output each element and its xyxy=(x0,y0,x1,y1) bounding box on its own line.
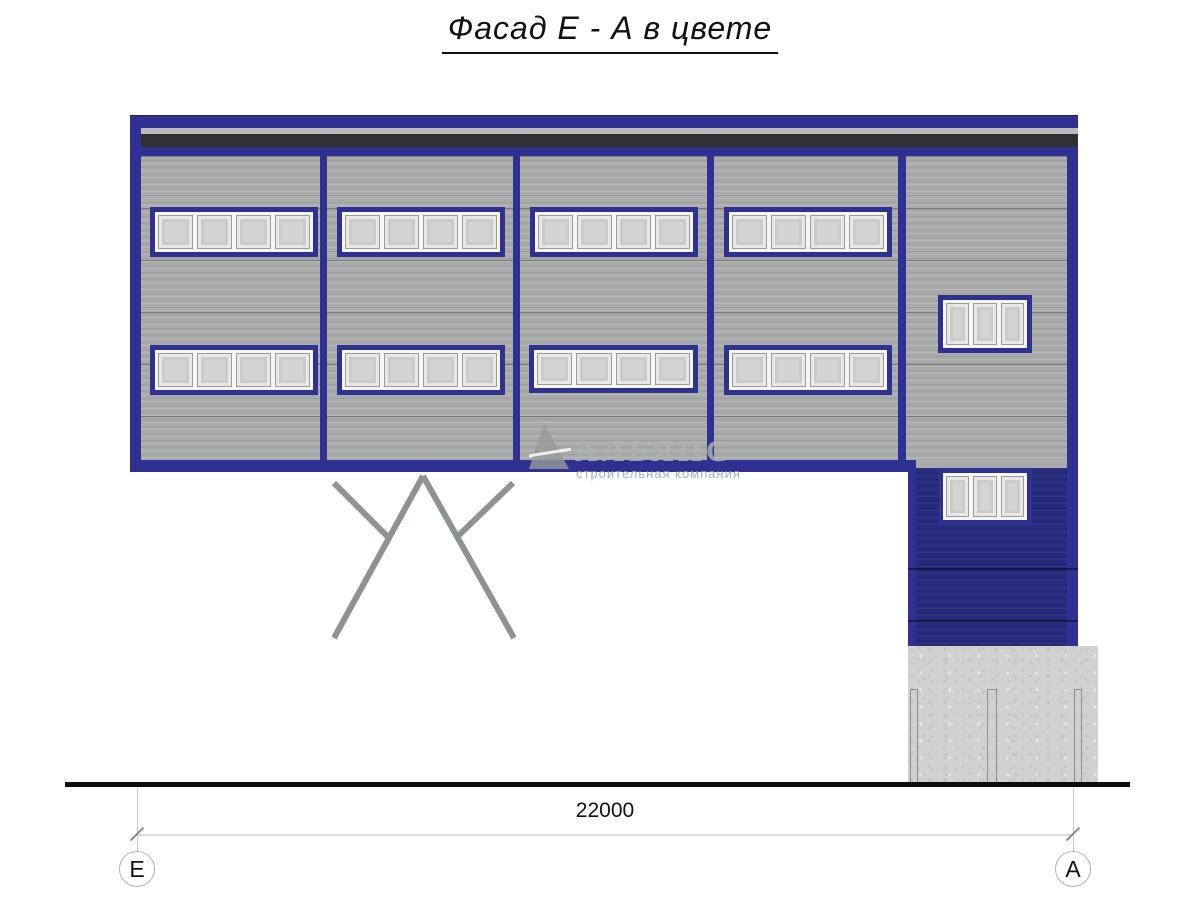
window-pane xyxy=(1001,476,1024,517)
window-pane xyxy=(732,215,767,249)
concrete-joint-slot xyxy=(1074,689,1082,783)
window-pane xyxy=(655,353,690,385)
window-pane xyxy=(849,353,884,387)
wall-panel-joint xyxy=(908,568,1078,570)
bay-divider xyxy=(898,156,906,468)
watermark-company-name: АЛЬЯНС xyxy=(575,433,732,469)
bay-divider xyxy=(707,156,714,461)
window-pane xyxy=(538,215,573,249)
concrete-base xyxy=(908,646,1098,784)
concrete-joint-slot xyxy=(910,689,918,783)
window-pane xyxy=(197,215,232,249)
window-pane xyxy=(1001,303,1024,345)
window-pane xyxy=(973,303,996,345)
support-column xyxy=(320,471,334,784)
extension-line-left xyxy=(137,788,138,851)
window-pane xyxy=(849,215,884,249)
window-pane xyxy=(384,215,419,249)
window-pane xyxy=(423,215,458,249)
window-frame xyxy=(729,350,887,390)
bay-divider xyxy=(513,156,520,461)
watermark-tagline: строительная компания xyxy=(576,466,741,481)
window-frame xyxy=(534,350,693,388)
window-pane xyxy=(384,353,419,387)
ribbon-window-4pane xyxy=(150,207,318,257)
window-3pane xyxy=(938,468,1032,525)
wall-panel-joint xyxy=(908,620,1078,622)
facade-siding-right-extension xyxy=(913,461,1067,468)
window-frame xyxy=(729,212,887,252)
roof-parapet-band xyxy=(130,115,1078,129)
window-pane xyxy=(946,476,969,517)
window-pane xyxy=(771,215,806,249)
window-frame xyxy=(342,212,500,252)
window-pane xyxy=(616,353,651,385)
support-column xyxy=(513,471,527,784)
window-pane xyxy=(462,353,497,387)
extension-line-right xyxy=(1073,788,1074,851)
ribbon-window-4pane xyxy=(337,345,505,395)
cross-bracing xyxy=(300,455,540,655)
facade-left-edge-band xyxy=(130,116,141,472)
roof-fascia-band xyxy=(130,134,1078,147)
support-column xyxy=(707,471,721,784)
company-logo-sail-icon xyxy=(529,423,571,469)
ribbon-window-4pane xyxy=(530,207,698,257)
bay-divider xyxy=(320,156,327,461)
window-pane xyxy=(732,353,767,387)
window-pane xyxy=(158,353,193,387)
window-pane xyxy=(616,215,651,249)
window-pane xyxy=(236,215,271,249)
drawing-title: Фасад Е - А в цвете xyxy=(442,10,778,54)
dimension-value: 22000 xyxy=(500,799,710,823)
ribbon-window-4pane xyxy=(724,207,892,257)
dimension-line xyxy=(137,834,1073,836)
window-pane xyxy=(158,215,193,249)
window-frame xyxy=(342,350,500,390)
window-pane xyxy=(275,215,310,249)
concrete-joint-slot xyxy=(987,689,997,783)
window-pane xyxy=(576,353,611,385)
window-pane xyxy=(462,215,497,249)
window-pane xyxy=(345,215,380,249)
support-column xyxy=(894,471,908,784)
support-column xyxy=(136,471,150,784)
window-frame xyxy=(943,473,1027,520)
window-pane xyxy=(345,353,380,387)
ribbon-window-4pane xyxy=(150,345,318,395)
window-frame xyxy=(155,350,313,390)
axis-marker-e: Е xyxy=(119,851,155,887)
ribbon-window-4pane xyxy=(337,207,505,257)
window-pane xyxy=(577,215,612,249)
window-pane xyxy=(771,353,806,387)
facade-siding xyxy=(130,156,1078,461)
window-frame xyxy=(155,212,313,252)
elevation-drawing: Фасад Е - А в цвете АЛЬЯНС строительная … xyxy=(0,0,1200,900)
ribbon-window-4pane xyxy=(724,345,892,395)
window-3pane xyxy=(938,295,1032,353)
window-pane xyxy=(275,353,310,387)
window-pane xyxy=(537,353,572,385)
window-frame xyxy=(535,212,693,252)
roof-lower-band xyxy=(130,147,1078,156)
window-pane xyxy=(197,353,232,387)
window-pane xyxy=(973,476,996,517)
window-pane xyxy=(655,215,690,249)
drawing-title-wrap: Фасад Е - А в цвете xyxy=(10,10,1200,54)
window-pane xyxy=(236,353,271,387)
axis-marker-a: А xyxy=(1055,851,1091,887)
ground-line xyxy=(65,782,1130,787)
window-frame xyxy=(943,300,1027,348)
window-pane xyxy=(946,303,969,345)
window-pane xyxy=(423,353,458,387)
ribbon-window-4pane xyxy=(529,345,698,393)
window-pane xyxy=(810,353,845,387)
window-pane xyxy=(810,215,845,249)
